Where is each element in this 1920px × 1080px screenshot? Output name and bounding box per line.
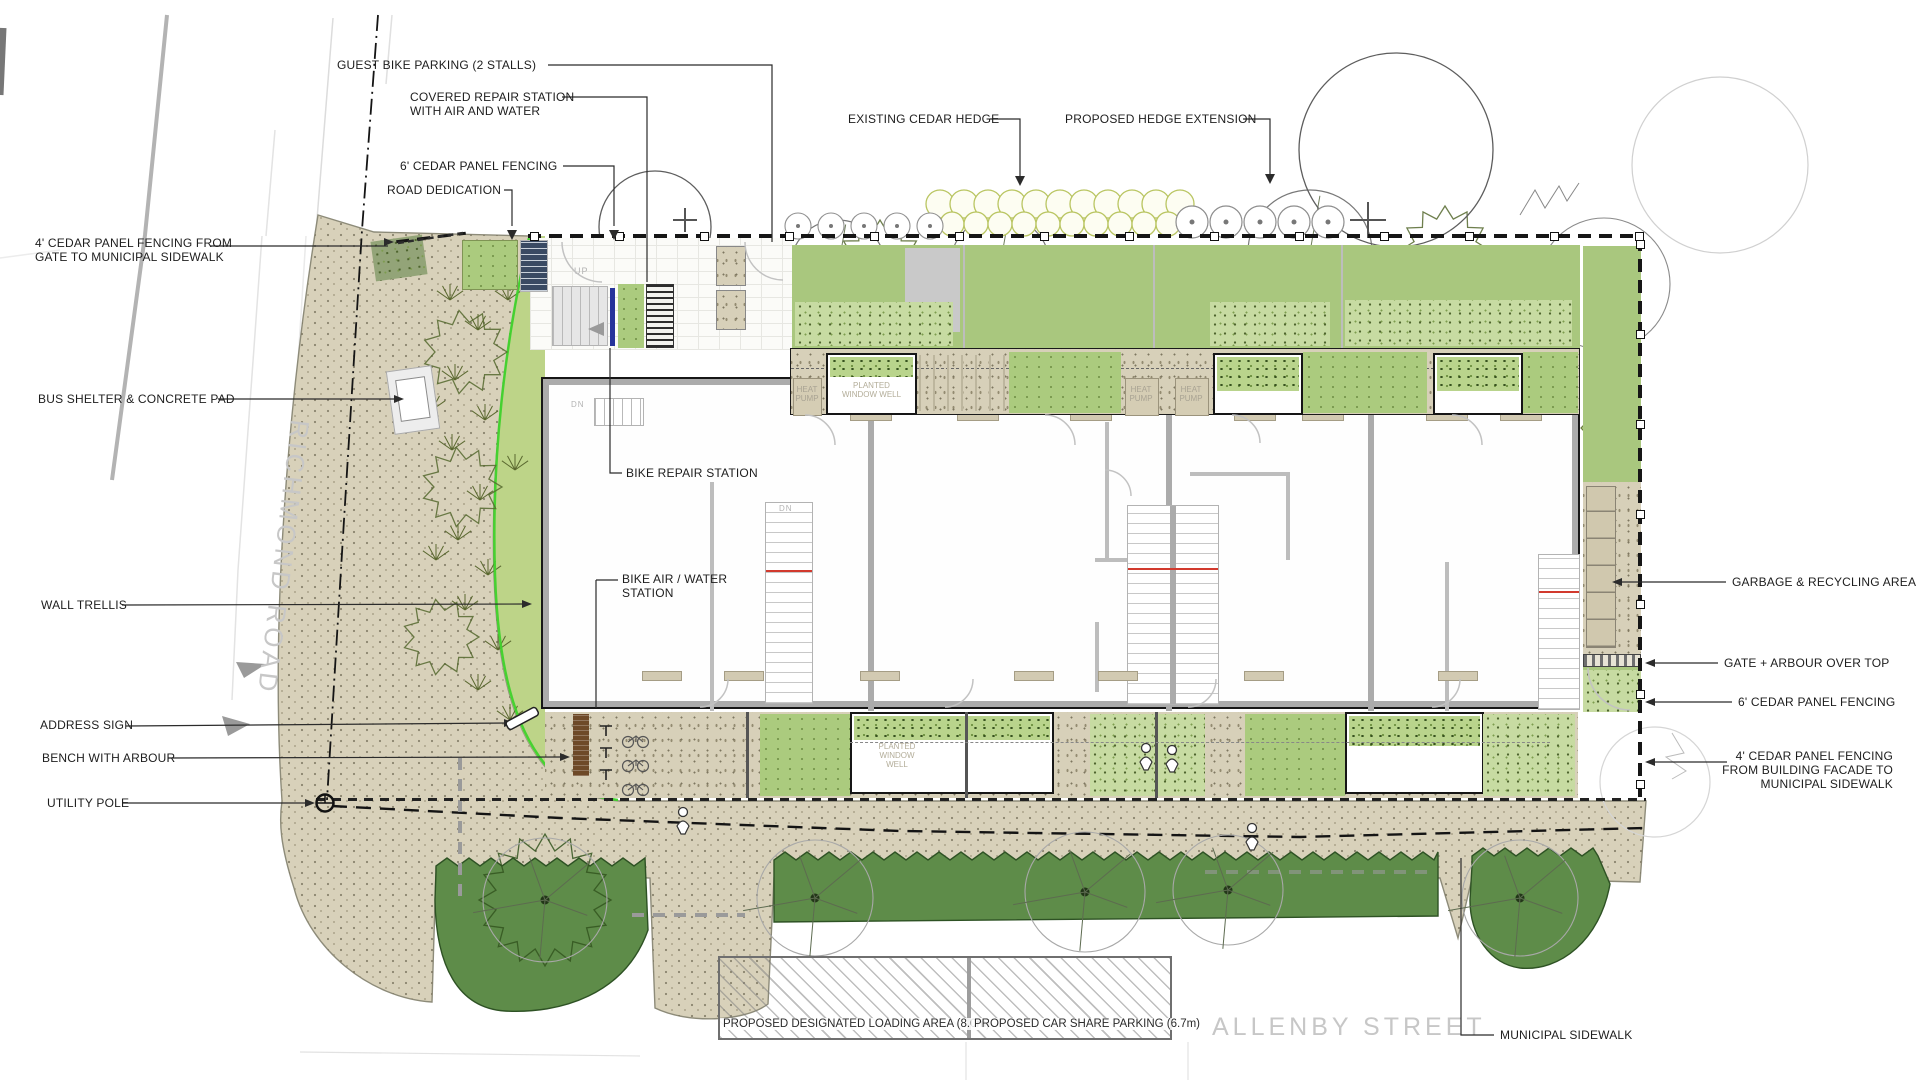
entry-stair-west [520,240,548,292]
car-share-label: PROPOSED CAR SHARE PARKING (6.7m) [971,1018,1170,1030]
label-proposed-hedge: PROPOSED HEDGE EXTENSION [1065,112,1257,126]
party-wall-1 [868,379,874,711]
fence-post [870,232,879,241]
fence-post [1636,240,1645,249]
window [1098,671,1138,681]
gate-arbour [1583,654,1641,667]
label-address-sign: ADDRESS SIGN [40,718,133,732]
interior-wall [1105,422,1109,562]
fence-post [1636,420,1645,429]
interior-wall [1445,562,1449,711]
rear-shrub-bed-1 [795,302,953,346]
front-fence-2 [965,712,968,798]
window [860,671,900,681]
building-perimeter-wall [543,379,1578,707]
label-bike-air-water: BIKE AIR / WATER STATION [622,572,727,600]
label-municipal-sidewalk: MUNICIPAL SIDEWALK [1500,1028,1633,1042]
band-planter-3 [1523,352,1578,413]
fence-post [1550,232,1559,241]
address-sign-symbol [505,706,539,730]
south-property-line [316,798,1646,801]
street-name-allenby: ALLENBY STREET [1212,1013,1486,1042]
band-planter-1 [1009,352,1121,413]
planted-window-well-south: PLANTED WINDOW WELL [850,712,1054,794]
interior-wall [1190,472,1290,476]
side-yard-shrubs [1583,670,1641,712]
fence-post [955,232,964,241]
label-cedar6-right: 6' CEDAR PANEL FENCING [1738,695,1895,709]
label-wall-trellis: WALL TRELLIS [41,598,127,612]
fence-post [1210,232,1219,241]
heat-pump-1-label: HEAT PUMP [789,385,825,403]
guest-bike-stall-2 [716,290,746,330]
garbage-bins [1586,486,1616,648]
fence-post [1636,510,1645,519]
step-lines [919,355,1005,411]
band-planter-2 [1303,352,1427,413]
label-bus-shelter: BUS SHELTER & CONCRETE PAD [38,392,235,406]
interior-wall [1286,472,1290,560]
planted-window-well-label: PLANTED WINDOW WELL [852,742,942,769]
label-guest-bike-parking: GUEST BIKE PARKING (2 STALLS) [337,58,536,72]
heat-pump-3-label: HEAT PUMP [1173,385,1209,403]
bus-shelter [395,376,431,422]
window [724,671,764,681]
fence-post [1040,232,1049,241]
north-window-well-band: HEAT PUMP PLANTED WINDOW WELL HEAT PUMP … [790,348,1580,415]
fence-post [530,232,539,241]
label-utility-pole: UTILITY POLE [47,796,129,810]
planted-window-well-north: PLANTED WINDOW WELL [826,353,917,415]
bike-repair-station-symbol [610,288,615,346]
window-well-plants [830,357,913,377]
label-cedar4-right: 4' CEDAR PANEL FENCING FROM BUILDING FAC… [1722,749,1893,791]
south-patio-band: PLANTED WINDOW WELL [545,712,1578,798]
window [1014,671,1054,681]
building-footprint: DN DN [541,377,1580,709]
fence-post [785,232,794,241]
covered-repair-station-roof [646,284,674,348]
entry-planter-west [462,240,518,290]
fence-post [1636,690,1645,699]
east-side-yard [1583,246,1641,712]
label-road-dedication: ROAD DEDICATION [387,183,501,197]
front-shrub-bed-1 [1090,714,1205,796]
yard-fence-1 [963,245,965,348]
stair-unit-1 [765,502,813,704]
window-well-3 [1433,353,1523,415]
heat-pump-2-label: HEAT PUMP [1123,385,1159,403]
bench-with-arbour-symbol [573,714,589,776]
up-text: UP [574,266,589,276]
window-well-plants [1217,357,1299,391]
window-well-plants [854,716,1050,740]
north-fence-line [528,234,1644,238]
dn-text: DN [779,504,793,513]
label-existing-hedge: EXISTING CEDAR HEDGE [848,112,999,126]
fence-post [1295,232,1304,241]
fence-post [615,232,624,241]
window [1244,671,1284,681]
court-planter [618,284,644,348]
window [1438,671,1478,681]
east-fence-line [1638,238,1642,800]
site-plan-canvas: RICHMOND ROAD ALLENBY STREET UP HEAT PUM… [0,0,1920,1080]
label-cedar4-left: 4' CEDAR PANEL FENCING FROM GATE TO MUNI… [35,236,232,264]
front-shrub-bed-2 [1483,714,1575,796]
window [642,671,682,681]
unit1-entry-stair [594,398,644,426]
party-wall-3 [1368,379,1374,711]
label-gate-arbour: GATE + ARBOUR OVER TOP [1724,656,1889,670]
label-cedar6-top: 6' CEDAR PANEL FENCING [400,159,557,173]
bus-shelter-concrete-pad [386,365,440,435]
front-fence-3 [1155,712,1158,798]
rear-shrub-bed-2 [1210,302,1330,346]
loading-area-label: PROPOSED DESIGNATED LOADING AREA (8.0m) [720,1018,967,1030]
fence-post [1636,600,1645,609]
fence-post [1465,232,1474,241]
stair-units-2-3 [1127,505,1219,705]
interior-wall [1095,622,1099,692]
rear-yards [792,245,1580,348]
rear-shrub-bed-3 [1345,300,1572,346]
fence-post [1636,330,1645,339]
label-bike-repair: BIKE REPAIR STATION [626,466,758,480]
fence-post [1125,232,1134,241]
street-name-richmond: RICHMOND ROAD [249,407,316,709]
window-well-plants [1437,357,1519,391]
dn-text: DN [571,400,585,409]
fence-post [1636,780,1645,789]
entry-courtyard-pavers [530,238,792,350]
front-planter-2 [1245,714,1345,796]
guest-bike-stall-1 [716,246,746,286]
yard-fence-3 [1341,245,1343,348]
window-well-2 [1213,353,1303,415]
label-bench-arbour: BENCH WITH ARBOUR [42,751,175,765]
front-planter-1 [760,714,850,796]
window-well-south-2 [1345,712,1484,794]
label-covered-repair: COVERED REPAIR STATION WITH AIR AND WATE… [410,90,574,118]
stair-direction-arrow [588,322,604,336]
entry-stair [552,286,608,346]
planted-window-well-label: PLANTED WINDOW WELL [828,381,915,399]
fence-post [1380,232,1389,241]
stair-unit-4 [1538,554,1580,710]
front-fence-1 [746,712,749,798]
street-parking-boxes: PROPOSED DESIGNATED LOADING AREA (8.0m) … [718,956,1172,1040]
yard-fence-2 [1153,245,1155,348]
label-garbage-recycling: GARBAGE & RECYCLING AREA [1732,575,1916,589]
front-yard-dashed-fence [850,742,1550,743]
fence-post [700,232,709,241]
